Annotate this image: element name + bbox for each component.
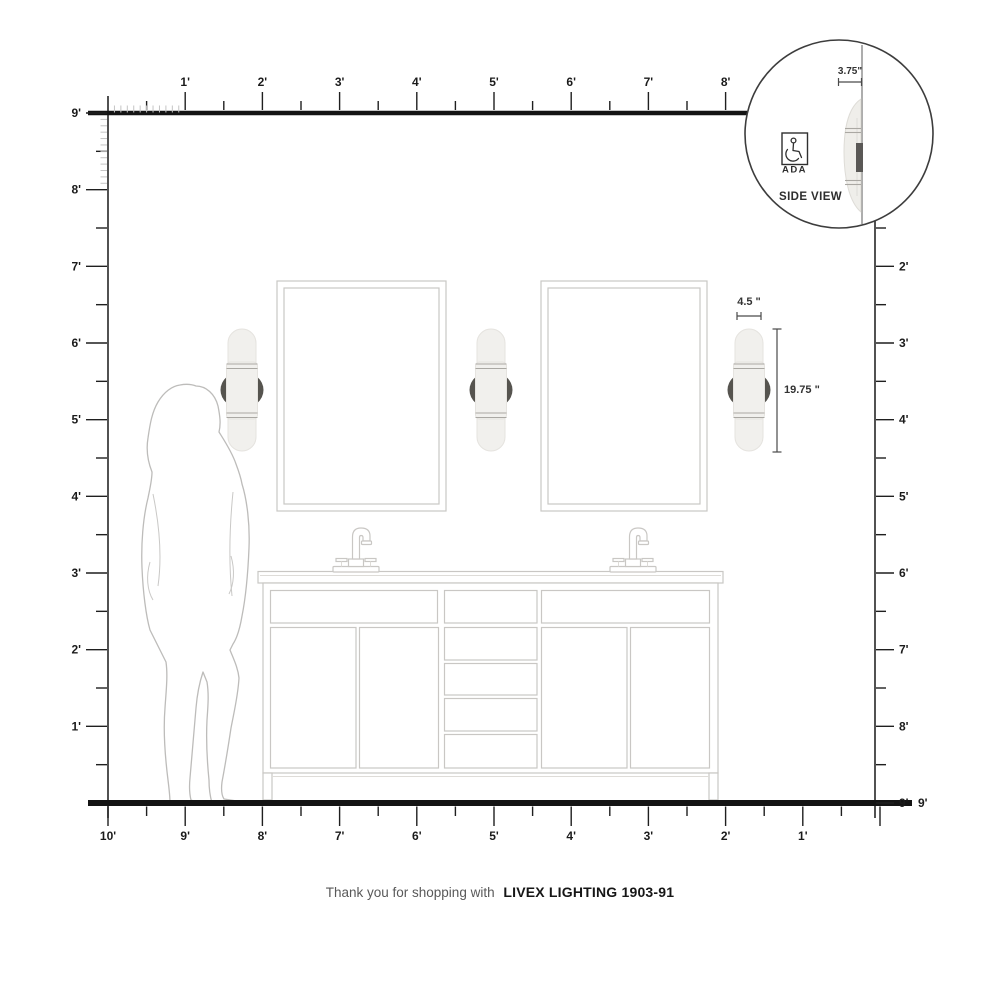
- ruler-tick-label: 5': [71, 413, 81, 427]
- ruler-tick-label: 8': [899, 719, 909, 733]
- ruler-tick-label: 2': [899, 259, 909, 273]
- ruler-tick-label: 2': [721, 829, 731, 843]
- wall-sconce-right: [728, 329, 771, 451]
- ruler-tick-label: 4': [566, 829, 576, 843]
- ruler-tick-label: 4': [899, 413, 909, 427]
- ruler-tick-label: 8': [258, 829, 268, 843]
- footer-thanks-text: Thank you for shopping with: [326, 885, 495, 900]
- inset-offset-label: 3.75": [838, 66, 862, 77]
- footer-brand-model: LIVEX LIGHTING 1903-91: [503, 884, 674, 900]
- ruler-tick-label: 3': [899, 336, 909, 350]
- fixture-height-label: 19.75 ": [784, 384, 820, 396]
- ruler-tick-label: 10': [100, 829, 116, 843]
- side-view-label: SIDE VIEW: [779, 191, 842, 203]
- ruler-tick-label: 6': [566, 75, 576, 89]
- ruler-tick-label: 7': [899, 643, 909, 657]
- vanity-door: [631, 628, 710, 769]
- vanity-leg: [709, 773, 718, 800]
- right-ruler: 2'3'4'5'6'7'8'9': [876, 228, 909, 810]
- left-ruler: 9'8'7'6'5'4'3'2'1': [71, 106, 107, 765]
- vanity-countertop: [258, 572, 723, 584]
- ruler-tick-label: 7': [644, 75, 654, 89]
- vanity-drawer: [445, 735, 538, 769]
- ruler-tick-label: 9': [899, 796, 909, 810]
- ada-compliance-icon: [782, 133, 808, 165]
- ruler-tick-label: 5': [489, 829, 499, 843]
- mirror-left: [277, 281, 446, 511]
- ruler-tick-label: 2': [71, 643, 81, 657]
- ruler-tick-label: 4': [71, 489, 81, 503]
- ruler-tick-label: 6': [71, 336, 81, 350]
- vanity-drawer: [445, 628, 538, 661]
- fixture-width-dimension: 4.5 ": [737, 296, 761, 320]
- ruler-tick-label: 5': [489, 75, 499, 89]
- top-ruler: 1'2'3'4'5'6'7'8': [114, 75, 730, 113]
- side-view-inset: 3.75" ADA SIDE VIEW: [745, 40, 933, 228]
- inset-mount-bracket: [856, 143, 863, 172]
- ruler-tick-label: 3': [71, 566, 81, 580]
- bottom-ruler: 10'9'8'7'6'5'4'3'2'1': [100, 807, 880, 844]
- ruler-tick-label: 1': [71, 719, 81, 733]
- vanity-door: [542, 628, 628, 769]
- ruler-tick-label: 7': [335, 829, 345, 843]
- wall-sconce-left: [221, 329, 264, 451]
- ruler-tick-label: 1': [798, 829, 808, 843]
- mirror-right: [541, 281, 707, 511]
- ada-label: ADA: [782, 165, 807, 176]
- ruler-tick-label: 9': [71, 106, 81, 120]
- footer-caption: Thank you for shopping with LIVEX LIGHTI…: [0, 884, 1000, 900]
- vanity-door: [360, 628, 439, 769]
- faucet-left: [333, 528, 379, 572]
- ruler-tick-label: 6': [412, 829, 422, 843]
- fixture-width-label: 4.5 ": [737, 296, 761, 308]
- ruler-tick-label: 9': [180, 829, 190, 843]
- vanity-drawer: [445, 699, 538, 732]
- fixture-height-dimension: 19.75 ": [773, 329, 820, 452]
- ruler-tick-label: 3': [335, 75, 345, 89]
- ruler-tick-label: 3': [644, 829, 654, 843]
- faucet-right: [610, 528, 656, 572]
- scene-drawing: 4.5 " 19.75 " 9' 1'2'3'4'5'6'7'8' 9'8'7'…: [0, 0, 1000, 1000]
- product-dimension-diagram: 4.5 " 19.75 " 9' 1'2'3'4'5'6'7'8' 9'8'7'…: [0, 0, 1000, 1000]
- wall-sconce-center: [470, 329, 513, 451]
- ruler-tick-label: 1': [180, 75, 190, 89]
- ruler-tick-label: 8': [721, 75, 731, 89]
- ruler-tick-label: 8': [71, 183, 81, 197]
- ruler-tick-label: 7': [71, 259, 81, 273]
- vanity-leg: [263, 773, 272, 800]
- ruler-tick-label: 5': [899, 489, 909, 503]
- vanity-cabinet: [258, 572, 723, 801]
- floor-right-height-label: 9': [918, 796, 928, 810]
- ruler-tick-label: 2': [258, 75, 268, 89]
- ruler-tick-label: 4': [412, 75, 422, 89]
- vanity-drawer: [445, 664, 538, 696]
- vanity-door: [271, 628, 357, 769]
- ruler-tick-label: 6': [899, 566, 909, 580]
